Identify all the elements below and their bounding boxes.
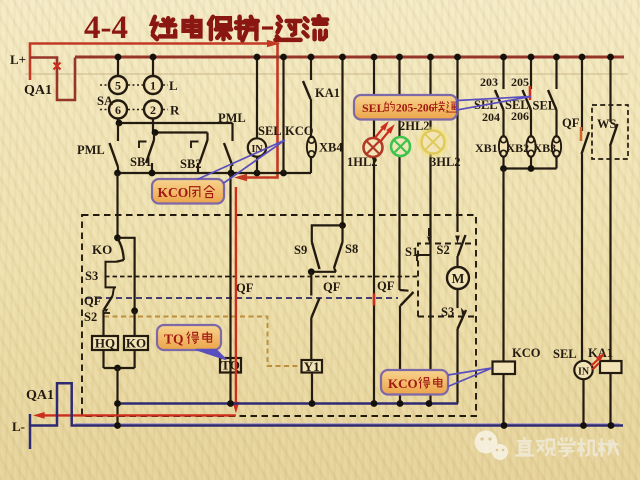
svg-text:S2: S2 (84, 310, 97, 324)
svg-text:WS: WS (597, 117, 617, 131)
svg-text:PML: PML (218, 111, 246, 125)
svg-text:TQ: TQ (164, 332, 184, 347)
svg-text:205: 205 (511, 75, 529, 89)
svg-text:S2: S2 (437, 243, 450, 257)
svg-text:IN: IN (578, 367, 590, 378)
svg-text:QA1: QA1 (26, 388, 54, 403)
svg-text:R: R (170, 103, 180, 118)
svg-text:QF: QF (562, 116, 580, 130)
svg-text:5: 5 (115, 79, 121, 93)
svg-text:KO: KO (92, 242, 112, 257)
svg-text:1: 1 (150, 79, 156, 93)
svg-text:2: 2 (150, 103, 156, 117)
svg-text:4-4: 4-4 (84, 10, 128, 46)
svg-text:SEL: SEL (553, 347, 577, 361)
svg-text:S3: S3 (441, 305, 454, 319)
svg-text:SEL: SEL (533, 99, 557, 113)
svg-text:KCO: KCO (158, 185, 189, 200)
svg-text:QF: QF (84, 294, 102, 308)
svg-text:KCO: KCO (285, 124, 314, 138)
svg-text:L-: L- (12, 419, 25, 434)
svg-text:SEL: SEL (362, 101, 385, 115)
svg-text:205-206: 205-206 (396, 103, 435, 115)
svg-text:QF: QF (323, 280, 341, 294)
svg-text:L+: L+ (10, 52, 26, 67)
svg-text:XB2: XB2 (507, 141, 530, 155)
svg-text:Y1: Y1 (304, 359, 320, 374)
svg-text:S9: S9 (294, 243, 307, 257)
svg-text:S3: S3 (85, 269, 98, 283)
svg-text:3HL2: 3HL2 (430, 155, 461, 169)
svg-text:KCO: KCO (388, 376, 418, 391)
svg-text:M: M (452, 271, 465, 286)
svg-text:QF: QF (236, 281, 254, 295)
svg-text:S8: S8 (345, 242, 358, 256)
svg-text:KCO: KCO (512, 346, 541, 360)
svg-text:SEL: SEL (258, 124, 282, 138)
svg-text:PML: PML (77, 143, 105, 157)
svg-text:1HL2: 1HL2 (347, 155, 378, 169)
svg-text:203: 203 (480, 75, 498, 89)
svg-text:L: L (169, 78, 178, 93)
svg-text:XB1: XB1 (475, 141, 498, 155)
svg-text:204: 204 (482, 110, 500, 124)
svg-text:HQ: HQ (95, 336, 115, 351)
svg-text:QA1: QA1 (24, 83, 52, 98)
svg-text:XB4: XB4 (319, 141, 343, 155)
svg-text:SA: SA (97, 94, 113, 108)
svg-text:6: 6 (115, 103, 121, 117)
svg-text:KO: KO (126, 336, 146, 351)
svg-text:206: 206 (511, 109, 529, 123)
svg-text:XB3: XB3 (534, 141, 557, 155)
svg-text:KA1: KA1 (315, 86, 340, 100)
svg-text:QF: QF (377, 279, 395, 293)
